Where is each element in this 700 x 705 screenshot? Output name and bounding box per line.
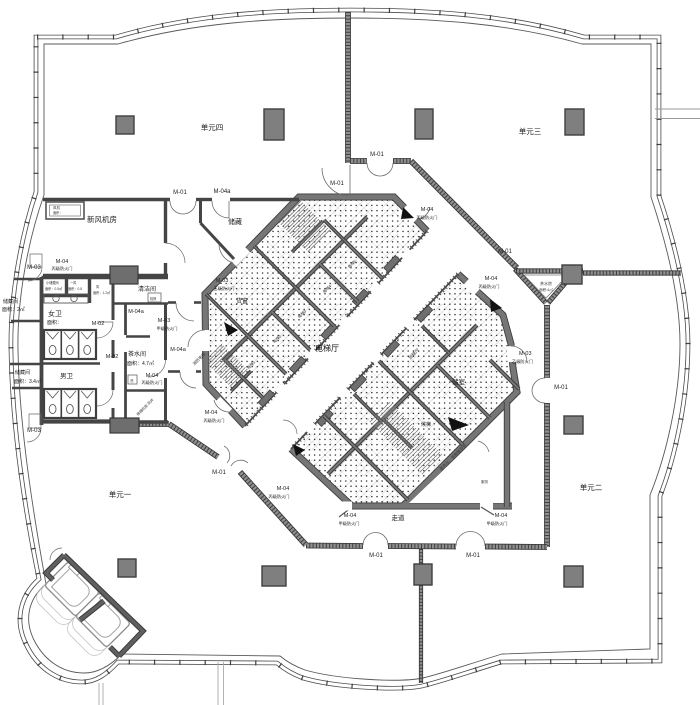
svg-text:M-04a: M-04a	[128, 309, 145, 315]
svg-text:单元四: 单元四	[201, 122, 224, 132]
svg-text:面积：: 面积：	[53, 210, 63, 215]
svg-text:丙级防火门: 丙级防火门	[52, 265, 73, 272]
svg-text:甲级防火门: 甲级防火门	[487, 520, 508, 527]
svg-text:M-03: M-03	[158, 318, 171, 324]
svg-text:M-01: M-01	[369, 553, 383, 559]
svg-text:洗: 洗	[130, 378, 134, 383]
svg-text:服务: 服务	[481, 479, 489, 484]
svg-text:面积:4㎡: 面积:4㎡	[539, 287, 553, 292]
svg-text:M-04: M-04	[495, 513, 508, 519]
svg-text:茶水间: 茶水间	[128, 350, 146, 358]
svg-text:M-04: M-04	[56, 259, 69, 265]
svg-text:储室: 储室	[452, 377, 466, 386]
svg-text:男卫: 男卫	[60, 372, 74, 380]
svg-text:丙级防火门: 丙级防火门	[417, 214, 438, 221]
svg-text:M-04: M-04	[146, 373, 159, 379]
svg-text:风机: 风机	[53, 205, 60, 210]
svg-text:储藏间: 储藏间	[3, 298, 18, 305]
svg-text:走道: 走道	[392, 513, 406, 522]
svg-text:清洁间: 清洁间	[138, 285, 156, 293]
svg-text:小储藏间: 小储藏间	[46, 280, 59, 285]
svg-text:单元一: 单元一	[109, 489, 132, 499]
svg-text:女卫: 女卫	[48, 309, 62, 318]
svg-text:丙级防火门: 丙级防火门	[479, 283, 500, 290]
svg-text:面积：0.8: 面积：0.8	[68, 286, 82, 291]
svg-text:一风: 一风	[70, 281, 77, 285]
svg-text:单元二: 单元二	[580, 482, 603, 492]
svg-text:M-01: M-01	[330, 181, 344, 187]
svg-text:丙级防火门: 丙级防火门	[142, 379, 163, 386]
svg-text:检修: 检修	[150, 296, 157, 301]
svg-text:新风机房: 新风机房	[87, 214, 117, 224]
svg-text:丙级防火门: 丙级防火门	[204, 417, 225, 424]
svg-text:M-03: M-03	[216, 278, 229, 284]
svg-text:储藏间: 储藏间	[15, 369, 30, 376]
svg-text:面积：2㎡: 面积：2㎡	[2, 306, 25, 313]
svg-text:茶水房: 茶水房	[540, 280, 552, 286]
svg-text:M-01: M-01	[212, 470, 226, 476]
svg-text:M-01: M-01	[173, 190, 187, 196]
svg-text:面积：3.4㎡: 面积：3.4㎡	[14, 378, 41, 385]
svg-text:面积：4.7㎡: 面积：4.7㎡	[127, 360, 154, 367]
svg-text:甲级防火门: 甲级防火门	[157, 325, 178, 332]
svg-text:M-04: M-04	[277, 486, 290, 492]
svg-text:储藏: 储藏	[228, 217, 242, 226]
svg-text:乙级防火门: 乙级防火门	[214, 285, 235, 292]
svg-text:面积：0.5㎡: 面积：0.5㎡	[45, 286, 63, 291]
svg-text:M-01: M-01	[498, 249, 512, 255]
svg-text:M-04: M-04	[421, 207, 434, 213]
svg-text:M-01: M-01	[370, 152, 384, 158]
svg-text:乙级防火门: 乙级防火门	[512, 358, 533, 365]
svg-text:M-04a: M-04a	[213, 189, 231, 195]
svg-text:M-04: M-04	[344, 513, 357, 519]
svg-text:甲级防火门: 甲级防火门	[339, 520, 360, 527]
svg-text:M-03: M-03	[27, 265, 41, 271]
svg-text:货窗: 货窗	[236, 297, 248, 305]
svg-text:M-03: M-03	[519, 351, 532, 357]
svg-text:M-04: M-04	[205, 410, 218, 416]
svg-text:M-04a: M-04a	[170, 347, 187, 353]
svg-text:M-02: M-02	[106, 354, 119, 360]
svg-text:M-02: M-02	[92, 321, 105, 327]
svg-text:单元三: 单元三	[519, 126, 542, 136]
svg-text:M-01: M-01	[554, 385, 568, 391]
svg-text:面积：: 面积：	[47, 319, 62, 326]
svg-text:M-01: M-01	[466, 553, 480, 559]
svg-text:电梯厅: 电梯厅	[315, 343, 339, 353]
svg-text:M-03: M-03	[27, 428, 41, 434]
svg-text:候梯: 候梯	[421, 421, 431, 428]
svg-text:面积：1.2㎡: 面积：1.2㎡	[93, 290, 111, 295]
svg-text:丙级防火门: 丙级防火门	[269, 493, 290, 500]
svg-text:M-04: M-04	[485, 276, 498, 282]
